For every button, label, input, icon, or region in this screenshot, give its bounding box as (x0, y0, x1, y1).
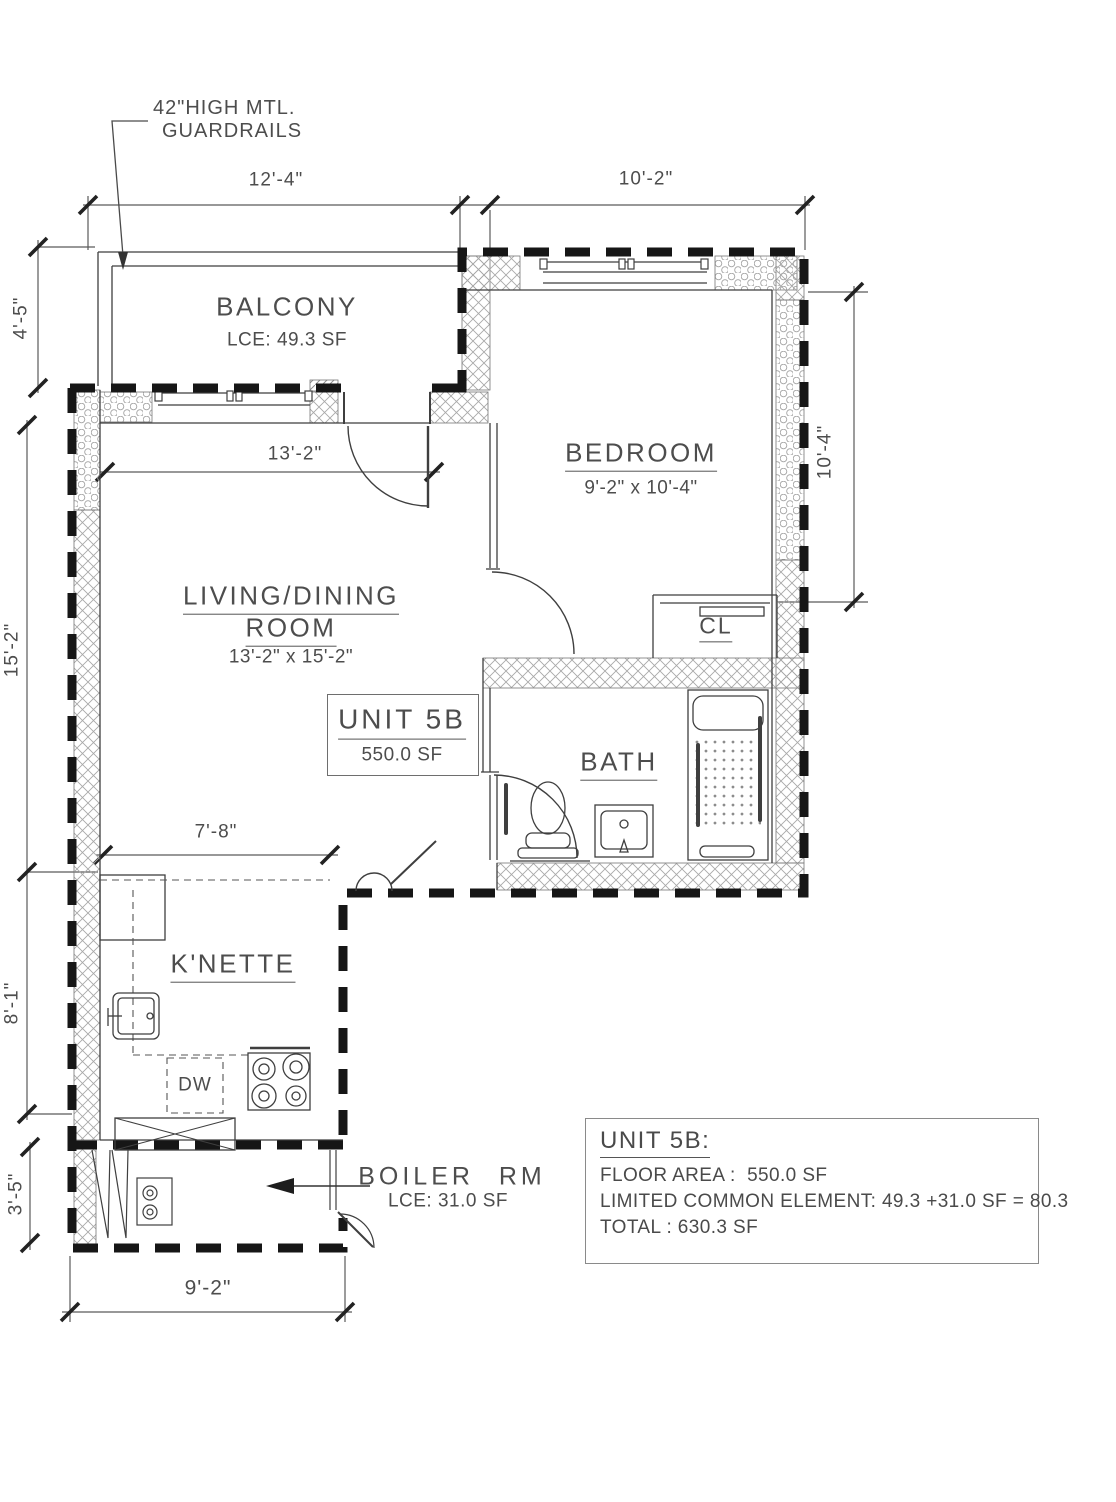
floor-plan: 42"HIGH MTL. GUARDRAILS 12'-4" 10'-2" 4'… (0, 0, 1116, 1502)
summary-total: TOTAL : 630.3 SF (600, 1217, 758, 1239)
guardrail-leader (112, 121, 148, 270)
unit-area-label: 550.0 SF (361, 746, 442, 767)
dim-kitchen-depth: 8'-1" (3, 982, 24, 1025)
unit-summary-box: UNIT 5B: FLOOR AREA : 550.0 SF LIMITED C… (585, 1118, 1039, 1264)
living-room-label-line1: LIVING/DINING (183, 582, 399, 615)
boiler-room-label: BOILER RM (358, 1163, 546, 1191)
summary-limited-common: LIMITED COMMON ELEMENT: 49.3 +31.0 SF = … (600, 1191, 1068, 1213)
plan-linework (0, 0, 1116, 1502)
bedroom-window (540, 259, 708, 283)
boiler-area-label: LCE: 31.0 SF (388, 1192, 508, 1213)
dim-living-depth: 15'-2" (3, 623, 24, 677)
dim-bedroom-width-overall: 10'-2" (619, 170, 673, 191)
closet-label: CL (699, 613, 732, 642)
doors (338, 392, 577, 1248)
bedroom-label: BEDROOM (565, 439, 717, 472)
dim-boiler-depth: 3'-5" (7, 1173, 28, 1216)
living-room-label-line2: ROOM (246, 614, 337, 647)
bath-label: BATH (580, 748, 657, 781)
summary-floor-area: FLOOR AREA : 550.0 SF (600, 1165, 827, 1187)
summary-title: UNIT 5B: (600, 1127, 710, 1158)
dim-balcony-depth: 4'-5" (12, 297, 33, 340)
unit-name-label: UNIT 5B (338, 705, 466, 740)
balcony-area-label: LCE: 49.3 SF (227, 331, 347, 352)
dim-kitchen-width: 7'-8" (195, 823, 238, 844)
dim-balcony-width: 12'-4" (249, 171, 303, 192)
bedroom-size-label: 9'-2" x 10'-4" (584, 479, 697, 500)
balcony-label: BALCONY (216, 293, 358, 322)
dim-living-width: 13'-2" (268, 445, 322, 466)
boiler-fixtures (92, 1150, 336, 1238)
kitchen-fixtures (100, 875, 330, 1150)
guardrail-note-line1: 42"HIGH MTL. (153, 97, 295, 119)
dim-bedroom-depth: 10'-4" (816, 425, 837, 479)
kitchenette-label: K'NETTE (170, 950, 295, 983)
dishwasher-label: DW (178, 1076, 212, 1097)
dim-boiler-width: 9'-2" (185, 1276, 232, 1299)
living-room-window (155, 391, 312, 405)
boiler-arrow (266, 1178, 370, 1194)
guardrail-note-line2: GUARDRAILS (162, 120, 302, 142)
living-room-size-label: 13'-2" x 15'-2" (229, 648, 353, 669)
